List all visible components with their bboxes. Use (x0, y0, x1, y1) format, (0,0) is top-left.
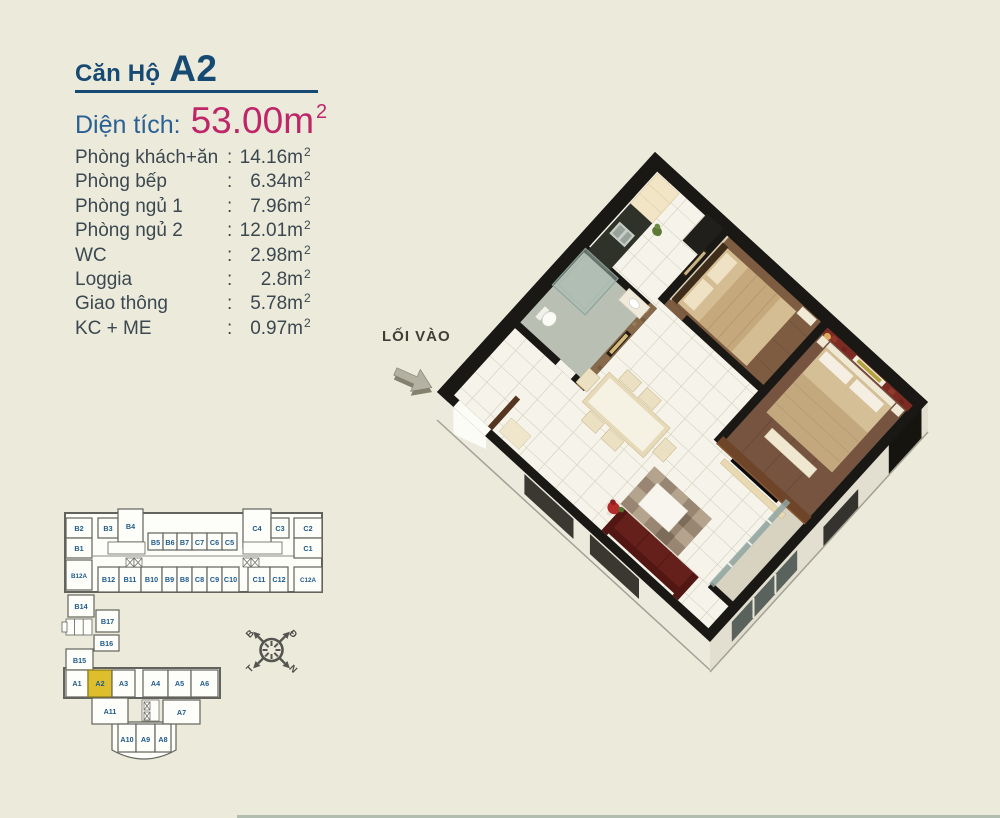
room-value: 2.98m (237, 245, 303, 267)
room-row: Loggia:2.8m2 (75, 269, 315, 293)
keyplan-unit-label: C2 (303, 524, 312, 533)
keyplan-unit-label: B17 (101, 617, 114, 626)
keyplan-unit-label: A5 (175, 679, 184, 688)
keyplan-unit-label: B12A (71, 573, 88, 580)
room-value: 7.96m (237, 196, 303, 218)
title-prefix: Căn Hộ (75, 60, 160, 88)
keyplan-unit-label: C11 (253, 575, 266, 584)
keyplan-unit-label: B1 (74, 544, 83, 553)
room-row: Giao thông:5.78m2 (75, 293, 315, 317)
keyplan-unit-label: C9 (210, 575, 219, 584)
keyplan-unit-label: A4 (151, 679, 160, 688)
keyplan-unit-label: B3 (103, 524, 112, 533)
keyplan-unit-label: A9 (141, 735, 150, 744)
keyplan-unit-label: B7 (180, 538, 189, 547)
keyplan-unit-label: B11 (124, 575, 137, 584)
room-row: WC:2.98m2 (75, 245, 315, 269)
keyplan-unit-label: C12A (300, 577, 317, 584)
keyplan-unit-label: B2 (74, 524, 83, 533)
stairs-icon (62, 619, 92, 635)
keyplan-unit-label: B15 (73, 656, 86, 665)
keyplan-unit-label: C4 (252, 524, 261, 533)
area-label: Diện tích: (75, 111, 181, 140)
room-label: Giao thông (75, 293, 227, 315)
total-area-line: Diện tích: 53.00m 2 (75, 100, 325, 142)
keyplan-unit-label: C5 (225, 538, 234, 547)
room-value: 0.97m (237, 318, 303, 340)
keyplan-unit-label: C10 (224, 575, 237, 584)
keyplan-unit-label: C3 (275, 524, 284, 533)
page-title: Căn Hộ A2 (75, 48, 218, 90)
room-row: KC + ME:0.97m2 (75, 318, 315, 342)
room-row: Phòng ngủ 2:12.01m2 (75, 220, 315, 244)
room-label: KC + ME (75, 318, 227, 340)
room-label: Phòng ngủ 1 (75, 196, 227, 218)
keyplan-unit-label: A6 (200, 679, 209, 688)
room-row: Phòng bếp:6.34m2 (75, 171, 315, 195)
keyplan-lobby (108, 542, 145, 554)
room-row: Phòng khách+ăn:14.16m2 (75, 147, 315, 171)
keyplan-unit-label: C7 (195, 538, 204, 547)
keyplan-unit-label: C12 (272, 575, 285, 584)
brochure-page: { "page": { "background": "#ecebdb", "ac… (0, 0, 1000, 818)
room-value: 14.16m (237, 147, 303, 169)
keyplan-unit-label: B8 (180, 575, 189, 584)
keyplan-unit-label: C6 (210, 538, 219, 547)
keyplan-unit-label: C8 (195, 575, 204, 584)
keyplan-unit-label: B14 (74, 602, 87, 611)
room-label: Phòng ngủ 2 (75, 220, 227, 242)
keyplan-unit-label: B9 (165, 575, 174, 584)
elevator-core-icon (142, 700, 159, 721)
compass-icon: B Đ T N (244, 628, 299, 676)
unit-code: A2 (169, 48, 217, 90)
keyplan-unit-label: A3 (119, 679, 128, 688)
area-value: 53.00m (191, 100, 314, 142)
keyplan: B2 B3 B4 B5 B6 B7 C7 C6 C5 C4 C3 C2 B1 C… (55, 500, 340, 775)
room-label: Phòng khách+ăn (75, 147, 227, 169)
keyplan-lobby (243, 542, 282, 554)
keyplan-unit-label: B4 (126, 522, 135, 531)
keyplan-unit-label: B16 (100, 639, 113, 648)
room-value: 5.78m (237, 293, 303, 315)
room-label: Loggia (75, 269, 227, 291)
room-value: 6.34m (237, 171, 303, 193)
title-underline (75, 90, 318, 93)
floorplan-3d (420, 118, 980, 678)
keyplan-unit-label: A7 (177, 708, 186, 717)
keyplan-unit-label: A10 (120, 735, 133, 744)
area-sup: 2 (316, 101, 327, 124)
room-label: Phòng bếp (75, 171, 227, 193)
room-list: Phòng khách+ăn:14.16m2 Phòng bếp:6.34m2 … (75, 147, 315, 342)
keyplan-unit-label: B5 (151, 538, 160, 547)
keyplan-unit-label: A2 (95, 679, 104, 688)
keyplan-unit-label: A8 (158, 735, 167, 744)
room-value: 12.01m (237, 220, 303, 242)
compass-letter-north: B (244, 628, 257, 641)
keyplan-unit-label: C1 (303, 544, 312, 553)
keyplan-unit-label: B12 (102, 575, 115, 584)
keyplan-unit-label: A11 (104, 707, 117, 716)
room-value: 2.8m (237, 269, 303, 291)
room-label: WC (75, 245, 227, 267)
room-row: Phòng ngủ 1:7.96m2 (75, 196, 315, 220)
keyplan-unit-label: B6 (165, 538, 174, 547)
keyplan-unit-label: A1 (72, 679, 81, 688)
keyplan-unit-label: B10 (145, 575, 158, 584)
compass-letter-east: Đ (286, 628, 299, 641)
